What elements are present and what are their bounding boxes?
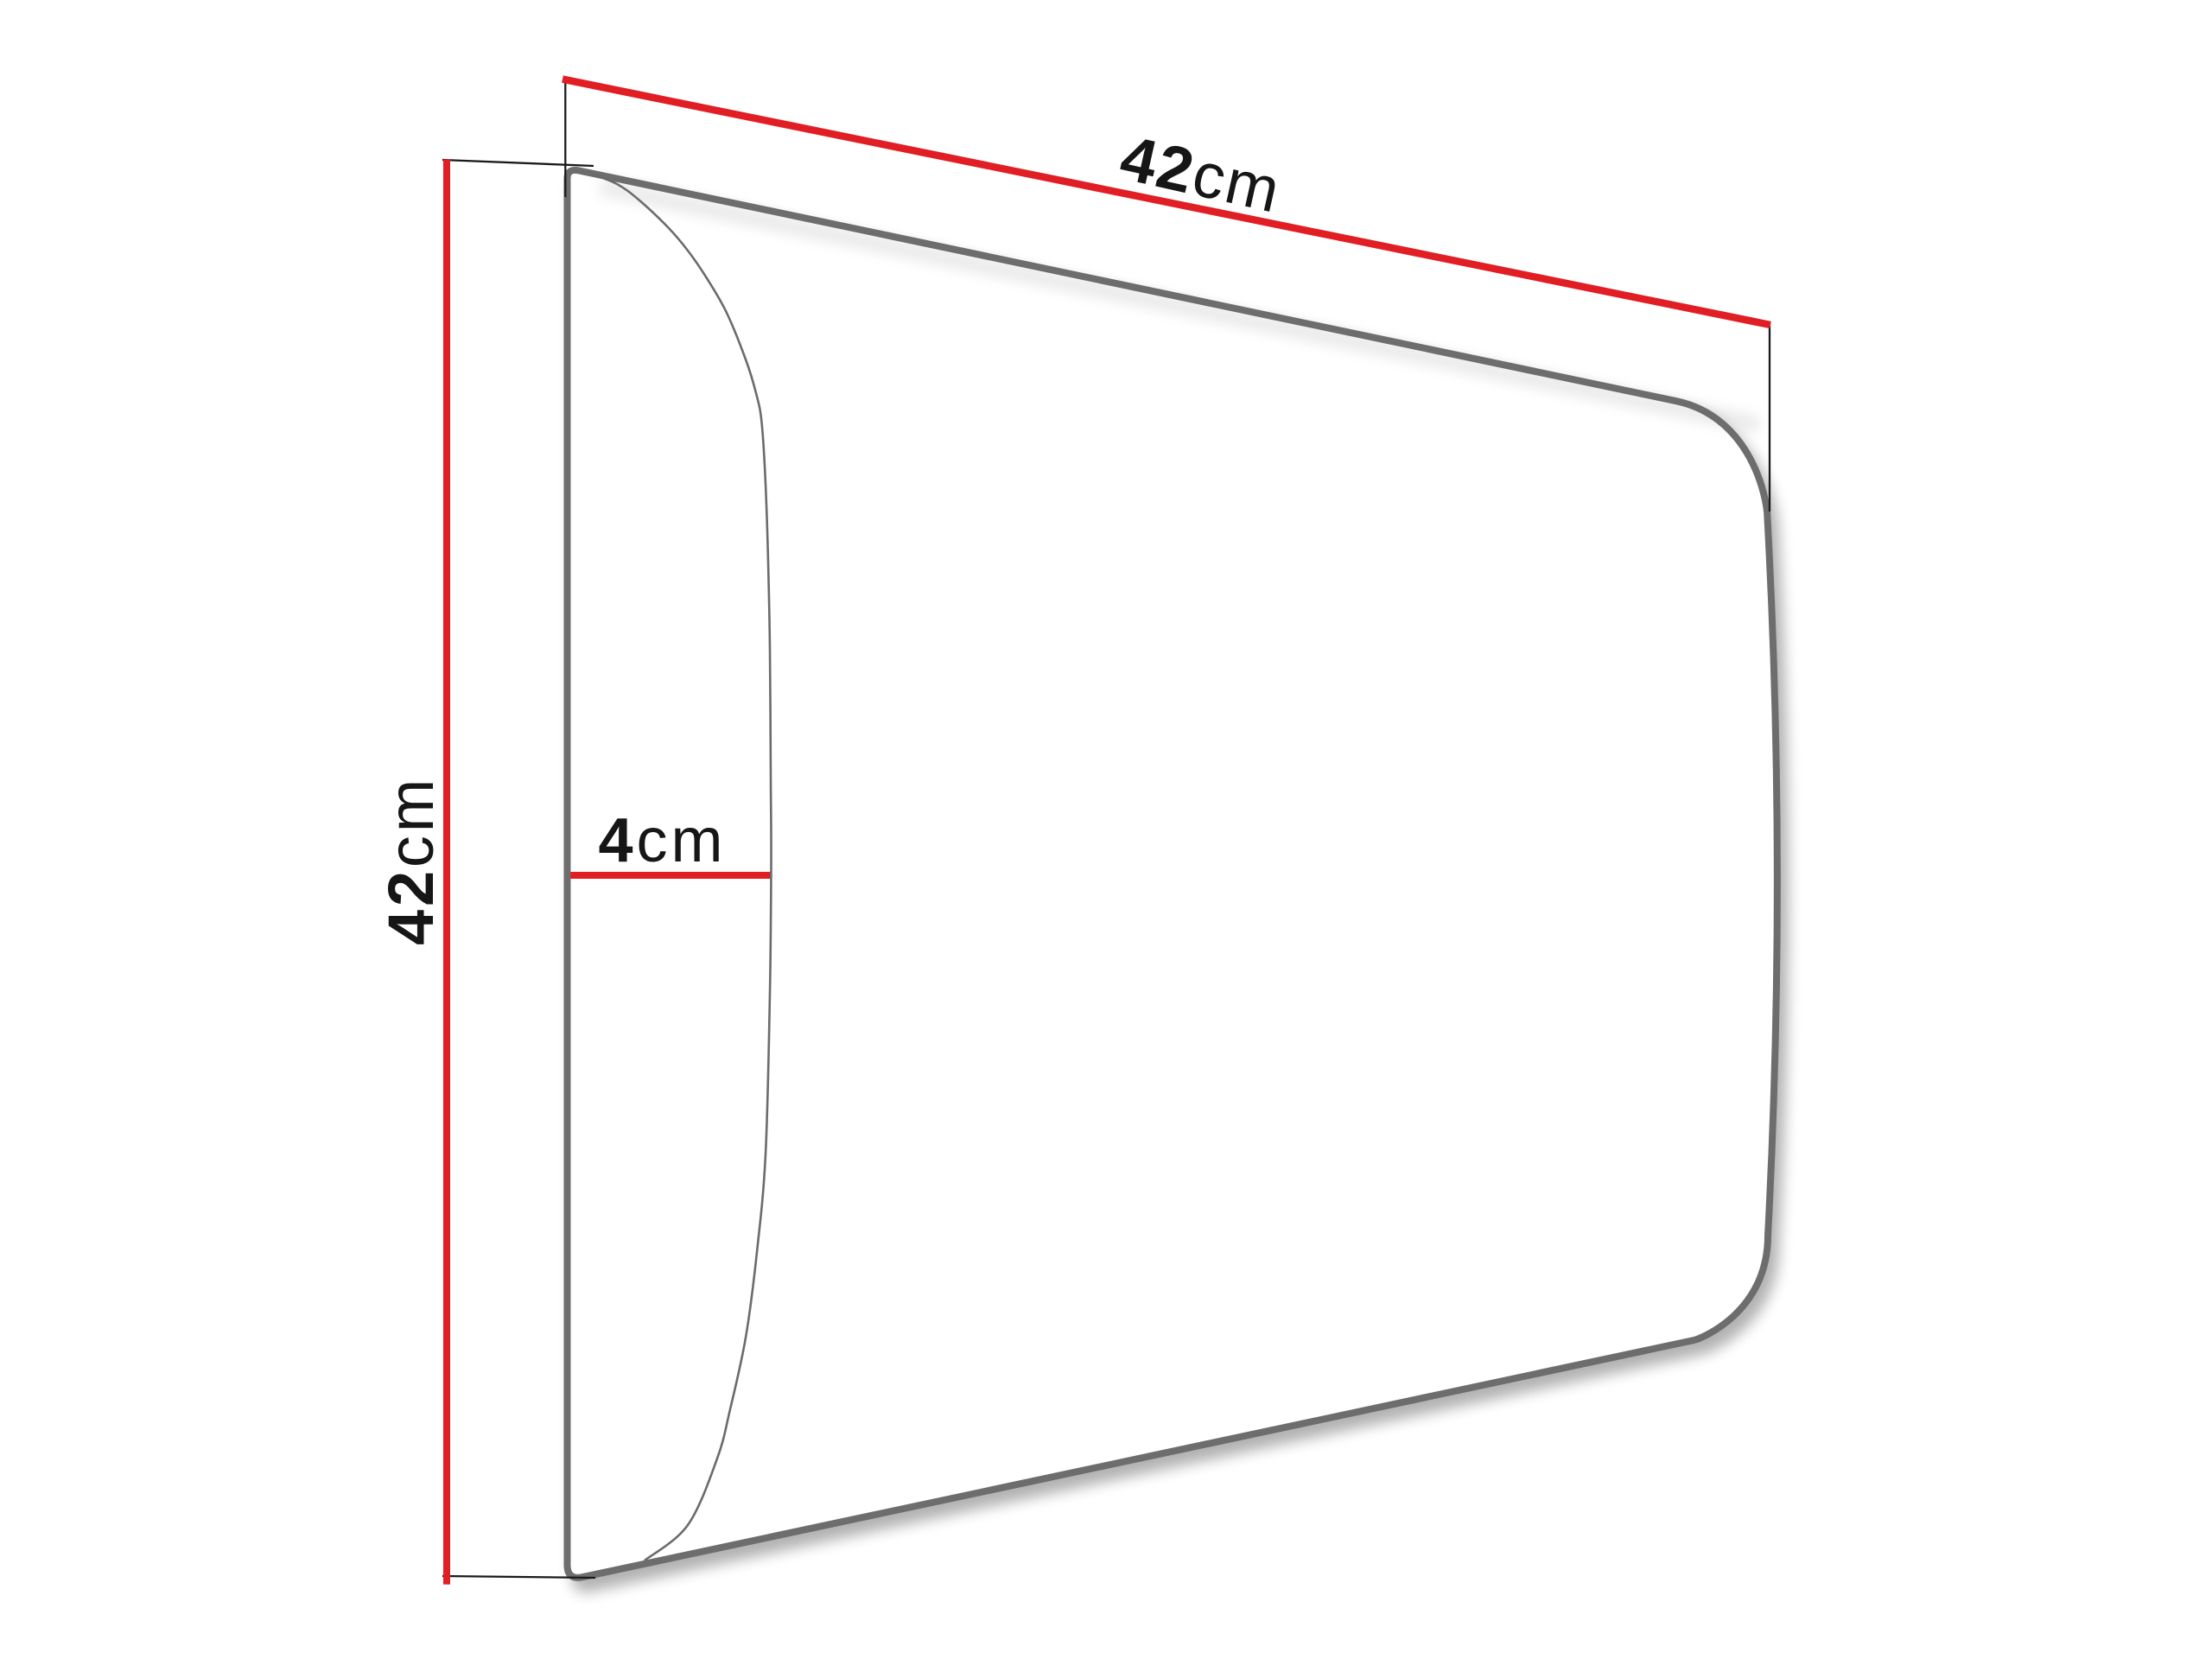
svg-text:42cm: 42cm — [375, 776, 447, 945]
svg-text:4cm: 4cm — [599, 806, 727, 875]
